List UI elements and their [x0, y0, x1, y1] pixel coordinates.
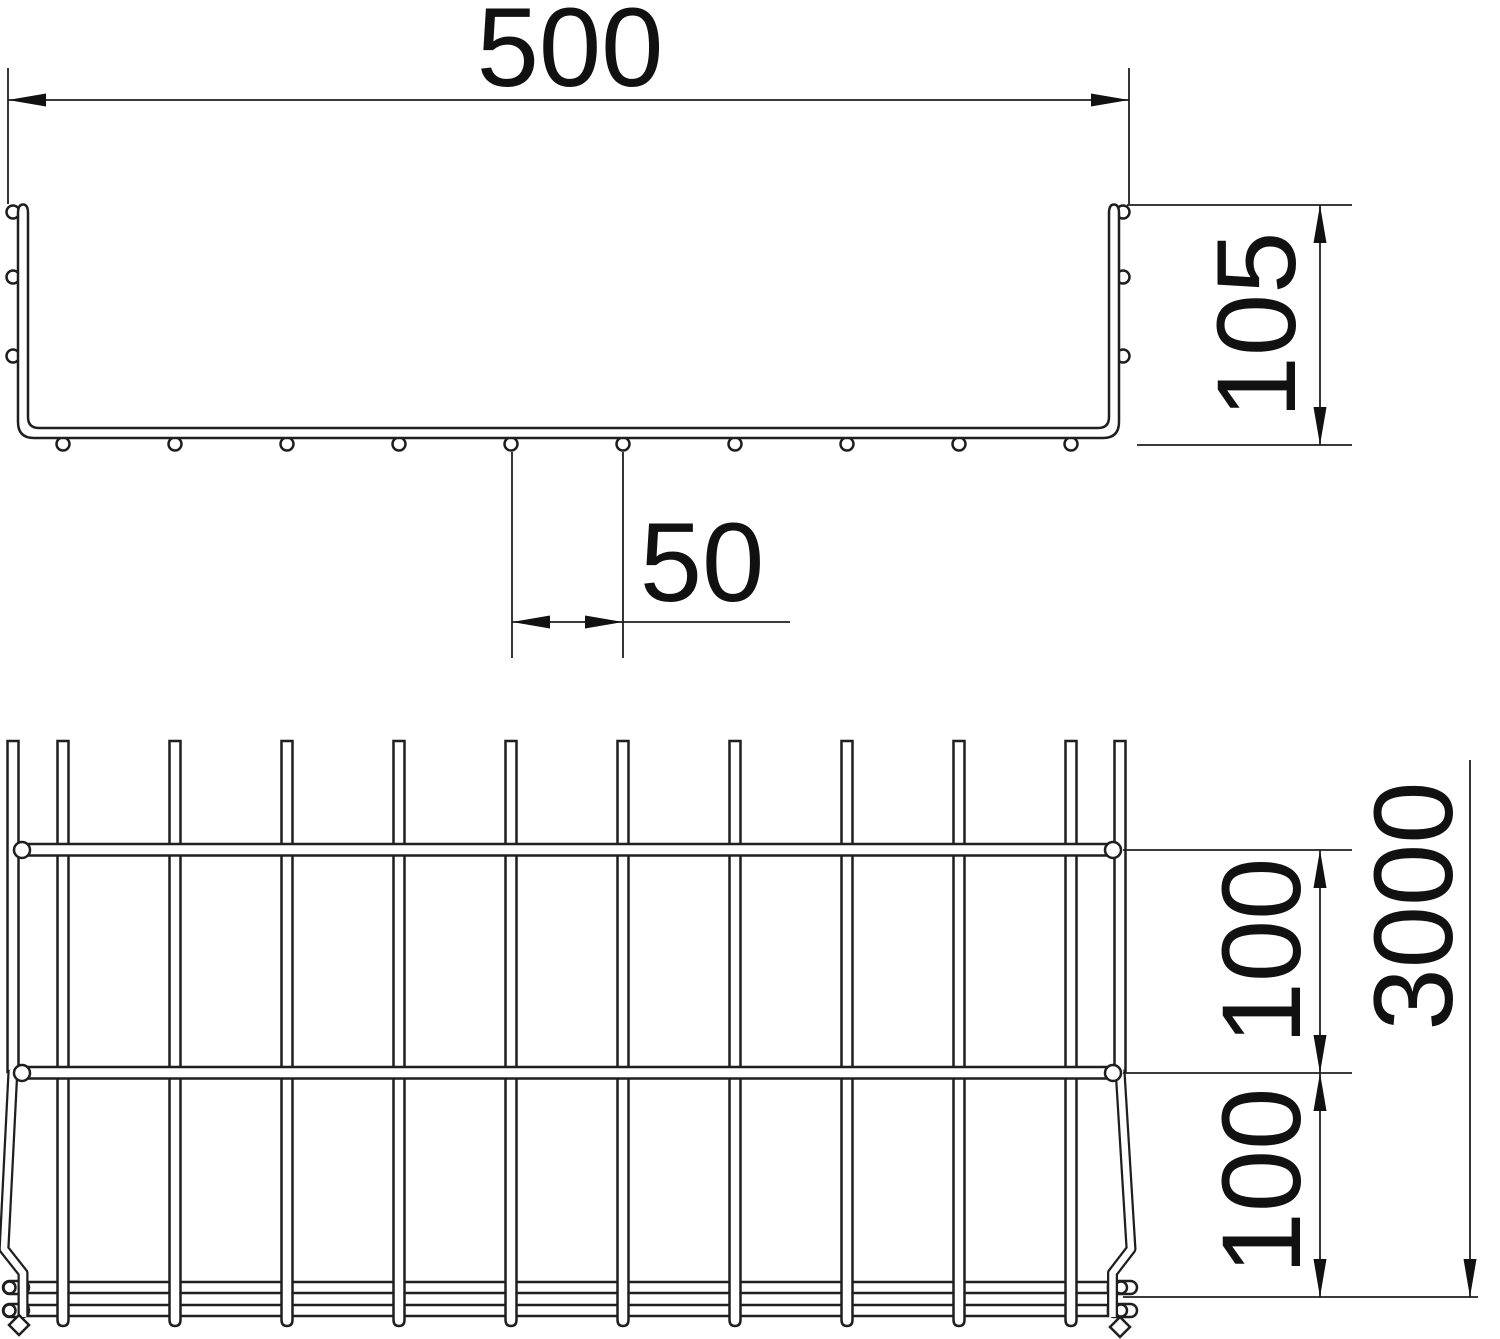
- bottom-wire-circle: [841, 438, 854, 451]
- bottom-wire-circle: [393, 438, 406, 451]
- longitudinal-wire: [58, 741, 69, 1326]
- dim-label-rung-pitch-top: 100: [1199, 858, 1324, 1045]
- rung-end-circle: [14, 842, 30, 858]
- bottom-wire-circle: [57, 438, 70, 451]
- longitudinal-wire: [954, 741, 965, 1326]
- side-wire-left: [8, 741, 19, 1072]
- longitudinal-wire: [618, 741, 629, 1326]
- arrow-right: [1091, 94, 1129, 107]
- dim-label-width: 500: [477, 0, 664, 110]
- rung-end-circle: [1105, 1065, 1121, 1081]
- longitudinal-wire: [282, 741, 293, 1326]
- arrow-down: [1464, 1259, 1477, 1297]
- dimension-height-105: 105: [1127, 205, 1352, 445]
- rung-1: [14, 842, 1121, 858]
- longitudinal-wire: [506, 741, 517, 1326]
- bottom-wire-circle: [729, 438, 742, 451]
- tray-u-profile: [18, 205, 1119, 439]
- longitudinal-wire: [394, 741, 405, 1326]
- longitudinal-wires: [58, 741, 1077, 1326]
- side-wire-right: [1115, 741, 1126, 1072]
- longitudinal-wire: [730, 741, 741, 1326]
- dim-label-rung-pitch-bottom: 100: [1199, 1088, 1324, 1275]
- dimension-rung-pitch-top-100: 100: [1123, 850, 1352, 1073]
- bottom-wire-circle: [953, 438, 966, 451]
- technical-drawing-canvas: 500 105 50: [0, 0, 1500, 1339]
- dimension-width-500: 500: [8, 0, 1129, 204]
- bottom-wire-circle: [1065, 438, 1078, 451]
- longitudinal-wire: [842, 741, 853, 1326]
- bottom-wire-circle: [505, 438, 518, 451]
- plan-view: 100 100 3000: [3, 741, 1478, 1337]
- hook-diamond-right: [1110, 1317, 1130, 1337]
- dimension-rung-pitch-bottom-100: 100: [1123, 1073, 1478, 1297]
- rung-end-circle: [14, 1065, 30, 1081]
- longitudinal-wire: [170, 741, 181, 1326]
- bottom-wire-circle: [169, 438, 182, 451]
- dim-label-height: 105: [1194, 232, 1319, 419]
- bottom-wire-circles: [57, 438, 1078, 451]
- dim-label-length: 3000: [1351, 781, 1476, 1030]
- bottom-wire-circle: [617, 438, 630, 451]
- mesh-tray-drawing: 500 105 50: [0, 0, 1500, 1339]
- longitudinal-wire: [1066, 741, 1077, 1326]
- dimension-wire-pitch-50: 50: [512, 452, 790, 658]
- rung-end-circle: [1105, 842, 1121, 858]
- arrow-right: [585, 616, 623, 629]
- arrow-left: [8, 94, 46, 107]
- end-wire-band-b: [28, 1305, 1108, 1316]
- dimension-length-3000: 3000: [1351, 760, 1477, 1297]
- end-wire-band-a: [28, 1282, 1108, 1293]
- bottom-wire-circle: [281, 438, 294, 451]
- side-wall-wire-circles: [7, 206, 1130, 363]
- dim-label-wire-pitch: 50: [640, 500, 765, 625]
- arrow-left: [512, 616, 550, 629]
- cross-section-view: 500 105 50: [7, 0, 1353, 658]
- rung-2: [14, 1065, 1121, 1081]
